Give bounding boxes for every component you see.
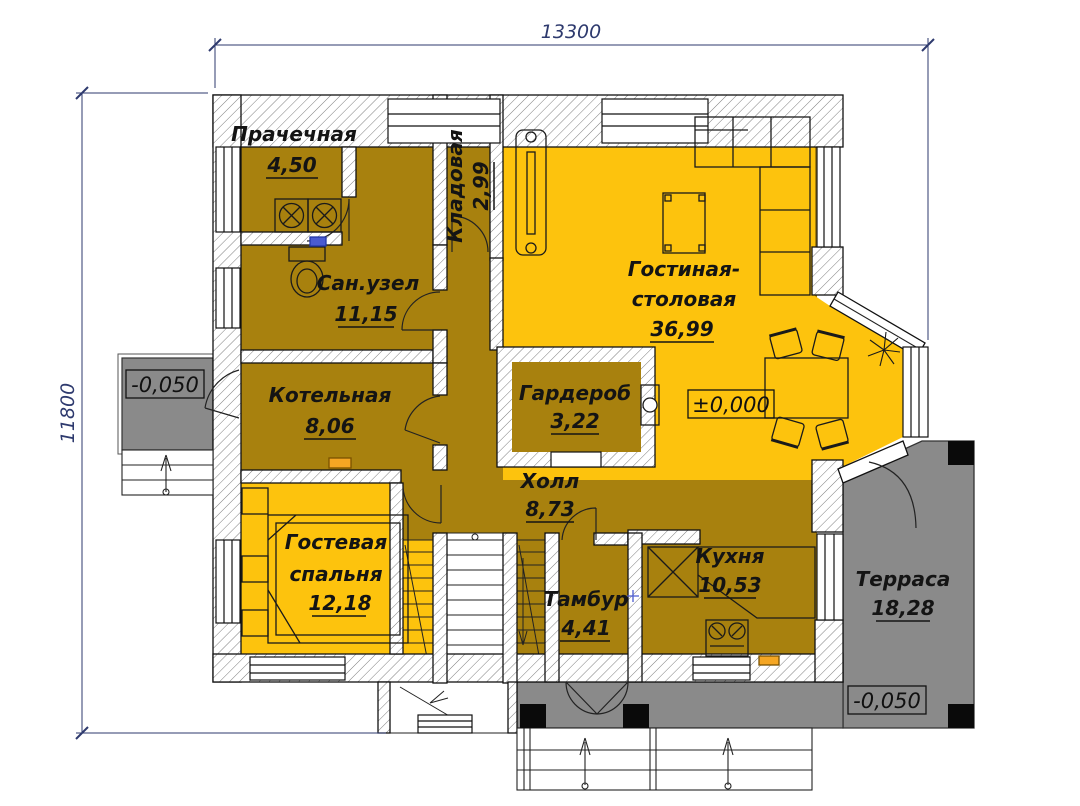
svg-text:Прачечная: Прачечная — [231, 122, 357, 146]
svg-text:Холл: Холл — [519, 469, 580, 493]
wall-landing-east — [508, 682, 517, 733]
svg-text:36,99: 36,99 — [650, 317, 713, 341]
wall-boiler-south — [241, 470, 401, 483]
window-bedroom-south — [250, 657, 345, 680]
wall-boiler-east-b — [433, 445, 447, 470]
svg-text:Сан.узел: Сан.узел — [317, 271, 420, 295]
level-terrace: -0,050 — [853, 689, 921, 713]
wall-laundry-east — [342, 147, 356, 197]
window-landing — [418, 715, 472, 733]
boiler-unit — [329, 458, 351, 468]
svg-text:Котельная: Котельная — [269, 383, 392, 407]
water-valve-marker — [310, 237, 326, 246]
window-bay-east — [903, 347, 928, 437]
wardrobe-floor — [512, 362, 641, 452]
wall-stair-b — [503, 533, 517, 683]
column-porch-2 — [623, 704, 649, 728]
floor-plan-canvas: 13300 11800 -0,050 ±0,000 -0,050 Прачечн… — [0, 0, 1080, 806]
svg-text:8,06: 8,06 — [305, 414, 354, 438]
svg-text:Гардероб: Гардероб — [519, 381, 631, 405]
window-living-east — [817, 147, 840, 247]
wall-bedroom-east — [390, 483, 403, 654]
svg-text:3,22: 3,22 — [550, 409, 599, 433]
svg-text:12,18: 12,18 — [308, 591, 371, 615]
wall-kitchen-east — [815, 620, 843, 682]
dim-height-label: 11800 — [57, 383, 79, 443]
window-bath — [216, 268, 240, 328]
dim-width-label: 13300 — [541, 21, 601, 43]
porch-left — [122, 358, 213, 450]
wall-boiler-east-a — [433, 363, 447, 395]
wall-bath-east-b — [433, 330, 447, 363]
wall-bay-block — [812, 247, 843, 295]
window-laundry — [216, 147, 240, 232]
porch-bottom — [517, 682, 843, 728]
svg-text:Кухня: Кухня — [696, 544, 765, 568]
wall-vestibule-north — [594, 533, 628, 545]
column-porch-1 — [520, 704, 546, 728]
window-bedroom-west — [216, 540, 240, 623]
wall-kitchen-west — [628, 533, 642, 682]
wall-bath-south — [241, 350, 433, 363]
column-terrace-se — [948, 704, 974, 728]
wall-landing-west — [378, 682, 390, 733]
window-kitchen-east — [817, 534, 843, 620]
svg-text:Тамбур: Тамбур — [544, 587, 629, 611]
svg-text:4,50: 4,50 — [266, 153, 316, 177]
wall-laundry-south — [241, 232, 342, 245]
wall-stair-a — [433, 533, 447, 683]
kitchen-vent — [759, 656, 779, 665]
svg-text:Гостевая: Гостевая — [285, 530, 388, 554]
svg-text:11,15: 11,15 — [334, 302, 397, 326]
window-top-2 — [602, 99, 708, 143]
wall-bath-east-a — [433, 245, 447, 290]
svg-text:8,73: 8,73 — [525, 497, 574, 521]
wall-hall-living — [490, 258, 503, 350]
level-porch-left: -0,050 — [131, 373, 199, 397]
svg-text:спальня: спальня — [289, 562, 382, 586]
window-kitchen-south — [693, 657, 750, 680]
svg-text:Кладовая: Кладовая — [443, 129, 467, 243]
svg-text:2,99: 2,99 — [469, 161, 493, 210]
svg-text:Гостиная-: Гостиная- — [628, 257, 740, 281]
svg-text:18,28: 18,28 — [871, 596, 934, 620]
svg-text:4,41: 4,41 — [560, 616, 610, 640]
svg-text:Терраса: Терраса — [856, 567, 951, 591]
svg-text:10,53: 10,53 — [698, 573, 761, 597]
level-main: ±0,000 — [692, 393, 770, 417]
svg-text:столовая: столовая — [632, 287, 737, 311]
door-wardrobe-opening — [551, 452, 601, 467]
column-terrace-ne — [948, 441, 974, 465]
